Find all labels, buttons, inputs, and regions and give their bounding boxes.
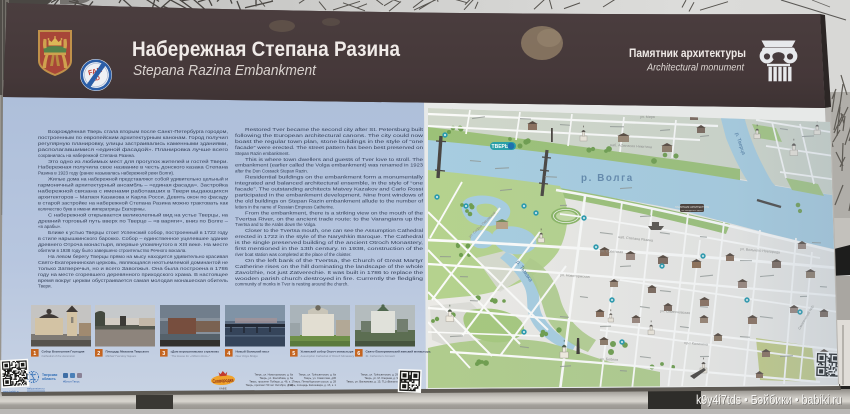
svg-text:Тверь, ул. Советская, д36: Тверь, ул. Советская, д36 [304,376,337,380]
svg-text:participated in the embankment: participated in the embankment developme… [235,192,424,197]
svg-text:the old buildings on Stepan Ra: the old buildings on Stepan Razin embank… [235,198,424,203]
svg-text:Тверь, ул. Новоторжская, д. 6а: Тверь, ул. Новоторжская, д. 6а [255,373,294,377]
svg-text:Тверь, площадь Капошвара, д. 1: Тверь, площадь Капошвара, д. 1б, к. 1 [288,383,337,387]
svg-text:boast the regular town plan, s: boast the regular town plan, stone build… [235,139,424,144]
svg-text:1: 1 [33,351,36,357]
svg-text:wooden parish church destroyed: wooden parish church destroyed in fire. … [235,276,424,281]
svg-text:Closer to the Tvertsa mouth, o: Closer to the Tvertsa mouth, one can see… [245,228,423,233]
svg-text:St. Catherine’s Convent: St. Catherine’s Convent [366,354,396,358]
svg-text:регулярную планировку, улицы з: регулярную планировку, улицы застраивали… [38,141,228,146]
svg-text:Твери.: Твери. [38,284,52,289]
svg-text:Тверь, проспект 50 лет Октября: Тверь, проспект 50 лет Октября, д. 28 [246,383,294,387]
svg-text:Ближе к устью Тверцы стоит Усп: Ближе к устью Тверцы стоит Успенский соб… [48,229,229,235]
svg-text:5: 5 [292,351,295,357]
svg-text:after the Don Cossack Stepan R: after the Don Cossack Stepan Razin. [235,169,308,174]
svg-text:Это одно из любимых мест для п: Это одно из любимых мест для прогулок жи… [48,158,228,164]
svg-text:построенным по европейским арх: построенным по европейским архитектурным… [38,134,228,140]
svg-text:Stepan Razin embankment.: Stepan Razin embankment. [235,151,290,156]
svg-text:Zavolzhie, not just Zatverechi: Zavolzhie, not just Zatverechie. It was … [235,270,424,275]
svg-text:Набережная получила свое назва: Набережная получила свое название в чест… [38,165,229,170]
svg-text:Возрождённая Тверь стала вторы: Возрождённая Тверь стала вторым после Са… [48,129,228,134]
svg-text:river boat station was complet: river boat station was completed at the … [235,252,351,257]
svg-text:Catherine rises on the hill do: Catherine rises on the hill dominating t… [235,264,424,269]
svg-text:архитекторов – Матвея Казакова: архитекторов – Матвея Казакова и Карла Р… [38,194,229,199]
svg-text:following the European archite: following the European architectural can… [235,133,424,138]
svg-text:Набережная Степана Разина: Набережная Степана Разина [132,37,401,61]
svg-text:только Затверечья, но и всего: только Затверечья, но и всего Заволжья. … [38,266,229,271]
svg-text:«в арабы».: «в арабы». [38,224,61,229]
svg-text:welcometver.ru: welcometver.ru [27,387,45,391]
svg-text:6: 6 [357,351,360,357]
svg-text:в старой застройке на набережн: в старой застройке на набережной Степана… [38,199,229,205]
svg-text:Тверь, ул. Желябова, д. 6а: Тверь, ул. Желябова, д. 6а [260,376,294,380]
svg-text:first mentioned in the 13th ce: first mentioned in the 13th century. In … [235,246,424,251]
svg-text:Tvertsa River, on the ancient: Tvertsa River, on the ancient trade rout… [235,216,424,221]
svg-text:Cathedral of the Ascension: Cathedral of the Ascension [42,354,76,358]
svg-text:в стиле нарышкинского барокко.: в стиле нарышкинского барокко. Собор – е… [38,236,229,241]
svg-text:Restored Tver became the secon: Restored Tver became the second city aft… [245,127,424,132]
svg-text:сохранилась на набережной Степ: сохранилась на набережной Степана Разина… [38,152,135,158]
svg-text:facade”. The outstanding archi: facade”. The outstanding architects Matv… [235,187,423,192]
svg-text:3: 3 [162,351,165,357]
svg-text:www.babiki.ru: www.babiki.ru [3,390,20,394]
svg-text:обители в 1938 году было завер: обители в 1938 году было завершено строи… [38,248,187,253]
svg-text:количество букв в имени импера: количество букв в имени императрицы Екат… [38,206,146,211]
svg-text:набережной связана с именами р: набережной связана с именами работавших … [38,188,229,194]
svg-text:Tvertsa and to the Arabs down: Tvertsa and to the Arabs down the Volga. [235,222,316,227]
svg-text:2: 2 [97,351,100,357]
svg-text:4: 4 [227,351,230,357]
svg-text:letters in the name of Russian: letters in the name of Russian Empress C… [235,204,334,209]
svg-text:гармоничный архитектурный анса: гармоничный архитектурный ансамбль – «ед… [38,182,229,188]
svg-text:embankment (earlier called the: embankment (earlier called the Volga emb… [235,163,424,168]
svg-text:С набережной открывается велик: С набережной открывается великолепный ви… [48,211,229,217]
svg-text:facade” were erected. The stre: facade” were erected. The street pattern… [235,145,424,150]
svg-text:область: область [42,377,56,381]
svg-text:Mikhail Tverskoy Square: Mikhail Tverskoy Square [106,354,137,358]
svg-text:Свято-Екатерининская церковь,: Свято-Екатерининская церковь, являющаяся… [38,259,229,265]
svg-text:Тверь, ул. М. Озерная, д. 9: Тверь, ул. М. Озерная, д. 9 [364,376,398,380]
svg-text:is the single preserved buildi: is the single preserved building of the … [235,240,423,245]
svg-text:Памятник архитектуры: Памятник архитектуры [629,48,746,60]
svg-text:располагавшимися «единой фасад: располагавшимися «единой фасадой». Плани… [38,146,229,152]
svg-text:Тверь, Петербургское шоссе, д.: Тверь, Петербургское шоссе, д. 28 [293,380,337,384]
svg-text:k9y4i7tds • Бэйбики • babiki.r: k9y4i7tds • Бэйбики • babiki.ru [696,392,842,407]
svg-text:время вокруг церкви обустраива: время вокруг церкви обустраивается самая… [38,278,229,283]
svg-text:КАФЕ: КАФЕ [219,387,227,391]
svg-text:integrated and balanced archit: integrated and balanced architectural en… [235,181,424,186]
svg-text:древнего Отроча монастыря, впе: древнего Отроча монастыря, впервые упомя… [38,242,229,247]
svg-text:Residential buildings on the e: Residential buildings on the embankment … [245,175,424,180]
svg-text:On the left bank of the Tverts: On the left bank of the Tvertsa, the Chu… [245,258,424,263]
svg-text:На левом берегу Тверцы прямо н: На левом берегу Тверцы прямо на мысу нах… [48,254,229,259]
svg-text:Тверь, ул. Трёхсвятская, д. 6а: Тверь, ул. Трёхсвятская, д. 6а [299,373,337,377]
svg-text:New Volga Bridge: New Volga Bridge [236,354,259,358]
svg-text:году на месте сгоревшего дерев: году на месте сгоревшего деревянного при… [38,272,229,277]
svg-text:Тверь, ул. Трёхсвятская, д. 29: Тверь, ул. Трёхсвятская, д. 29 [361,373,399,377]
svg-text:Architectural monument: Architectural monument [646,63,745,74]
svg-text:Stepana Razina Embankment: Stepana Razina Embankment [133,63,317,79]
svg-text:Тверь, ул. Вагжанова, д. 15, Т: Тверь, ул. Вагжанова, д. 15, ТЦ «Вокзал» [346,380,398,384]
svg-text:Тверь, проспект Победы, д. 46,: Тверь, проспект Победы, д. 46, к. 1 [249,380,293,384]
svg-text:Assumption Cathedral of Otroch: Assumption Cathedral of Otroch Monastery [300,354,355,358]
svg-text:#ВизитТверь: #ВизитТверь [63,380,80,384]
svg-text:Жилые дома на набережной предс: Жилые дома на набережной представляют со… [48,176,229,182]
svg-text:This is where town dwellers an: This is where town dwellers and guests o… [245,157,424,162]
svg-text:erected in 1722 in the style o: erected in 1722 in the style of the Nary… [235,234,423,239]
svg-text:Разина в 1923 году (ранее назы: Разина в 1923 году (ранее называлась наб… [38,170,174,176]
svg-text:community of monks in Tver is: community of monks in Tver is nesting ar… [235,282,349,287]
svg-text:From the embankment, there is: From the embankment, there is a striking… [245,210,424,215]
svg-text:“The House for «Obkom Dom»”: “The House for «Obkom Dom»” [171,354,211,358]
svg-text:древний торговый путь вверх по: древний торговый путь вверх по Тверце – … [38,217,229,223]
